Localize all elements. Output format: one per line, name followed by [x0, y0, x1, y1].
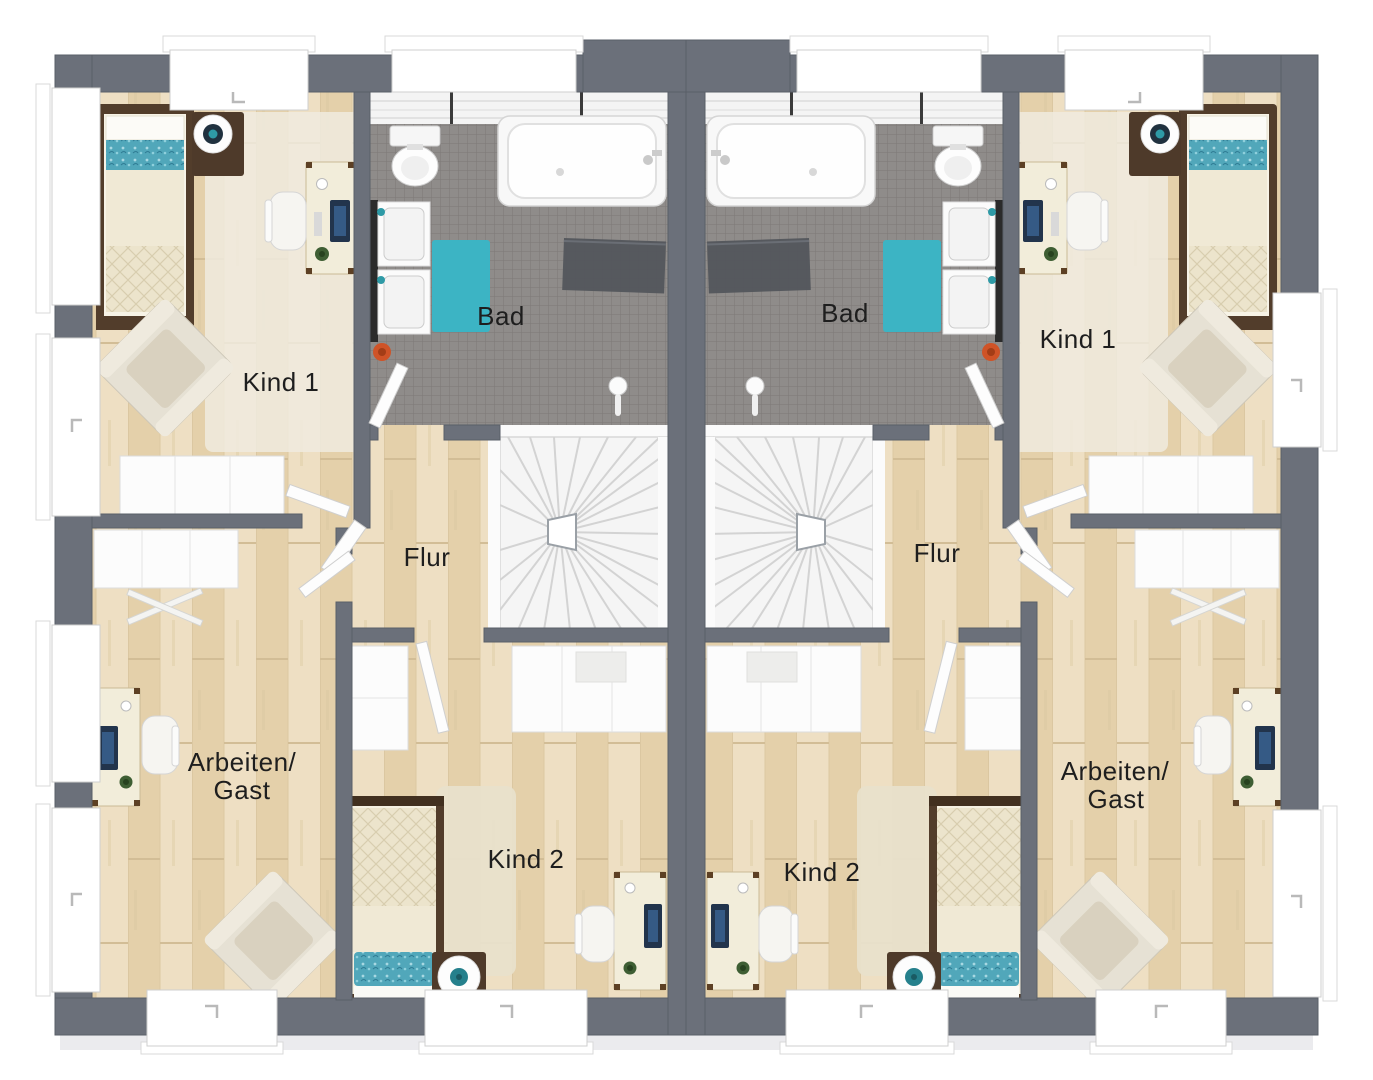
room-label-kind1-left: Kind 1	[243, 367, 320, 397]
room-label-kind2-left: Kind 2	[488, 844, 565, 874]
room-label-bad-right: Bad	[821, 298, 869, 328]
room-label-bad-left: Bad	[477, 301, 525, 331]
unit-left	[55, 36, 687, 1054]
window	[36, 804, 100, 996]
room-label-arbeiten-right-line2: Gast	[1088, 784, 1145, 814]
room-label-arbeiten-right-line1: Arbeiten/	[1061, 756, 1170, 786]
window	[36, 334, 100, 520]
room-label-arbeiten-left-line2: Gast	[214, 775, 271, 805]
floor-plan-svg: Bad Kind 1 Flur Arbeiten/ Gast Kind 2 Ba…	[0, 0, 1373, 1080]
window	[36, 84, 100, 313]
room-label-arbeiten-left-line1: Arbeiten/	[188, 747, 297, 777]
window	[36, 621, 100, 786]
unit-right	[686, 36, 1318, 1054]
room-label-kind1-right: Kind 1	[1040, 324, 1117, 354]
room-label-flur-right: Flur	[914, 538, 961, 568]
window	[1273, 289, 1337, 451]
floor-plan-page: Bad Kind 1 Flur Arbeiten/ Gast Kind 2 Ba…	[0, 0, 1373, 1080]
room-label-kind2-right: Kind 2	[784, 857, 861, 887]
window	[1273, 806, 1337, 1001]
room-label-flur-left: Flur	[404, 542, 451, 572]
